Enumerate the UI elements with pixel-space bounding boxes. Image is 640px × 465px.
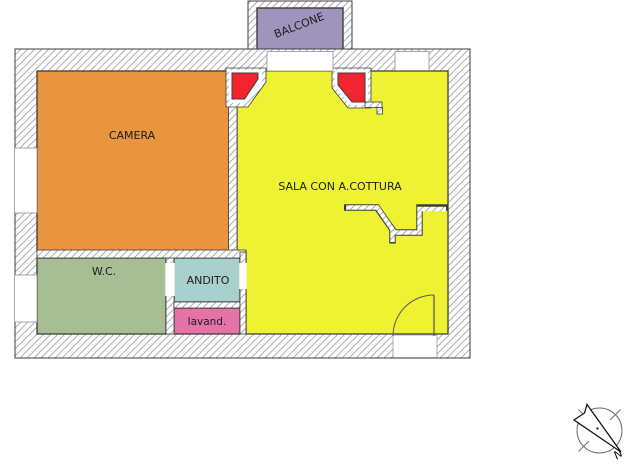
north-label: N <box>611 447 625 462</box>
room-camera <box>37 71 229 251</box>
room-label-wc: W.C. <box>92 265 116 278</box>
compass-rose: N <box>574 405 625 463</box>
room-label-sala: SALA CON A.COTTURA <box>278 180 402 193</box>
room-label-lavanderia: lavand. <box>188 316 227 328</box>
wall-andito-lavanderia <box>174 302 240 308</box>
window-opening-left-upper <box>15 148 38 213</box>
room-label-andito: ANDITO <box>187 274 230 287</box>
wall-stub-horizontal <box>365 102 382 108</box>
floorplan-canvas: CAMERA SALA CON A.COTTURA W.C. ANDITO la… <box>0 0 640 465</box>
room-label-camera: CAMERA <box>109 129 156 142</box>
entrance-door-opening <box>393 335 437 358</box>
door-opening-andito-sala <box>239 263 247 289</box>
compass-center-dot <box>596 427 598 429</box>
window-opening-top-right <box>395 52 429 71</box>
window-opening-left-lower <box>15 275 38 322</box>
balcony-door-opening <box>267 52 333 72</box>
wall-stub-vertical <box>377 108 383 115</box>
room-sala <box>237 71 448 334</box>
wall-camera-south <box>37 250 246 258</box>
door-opening-wc-andito <box>165 263 175 296</box>
